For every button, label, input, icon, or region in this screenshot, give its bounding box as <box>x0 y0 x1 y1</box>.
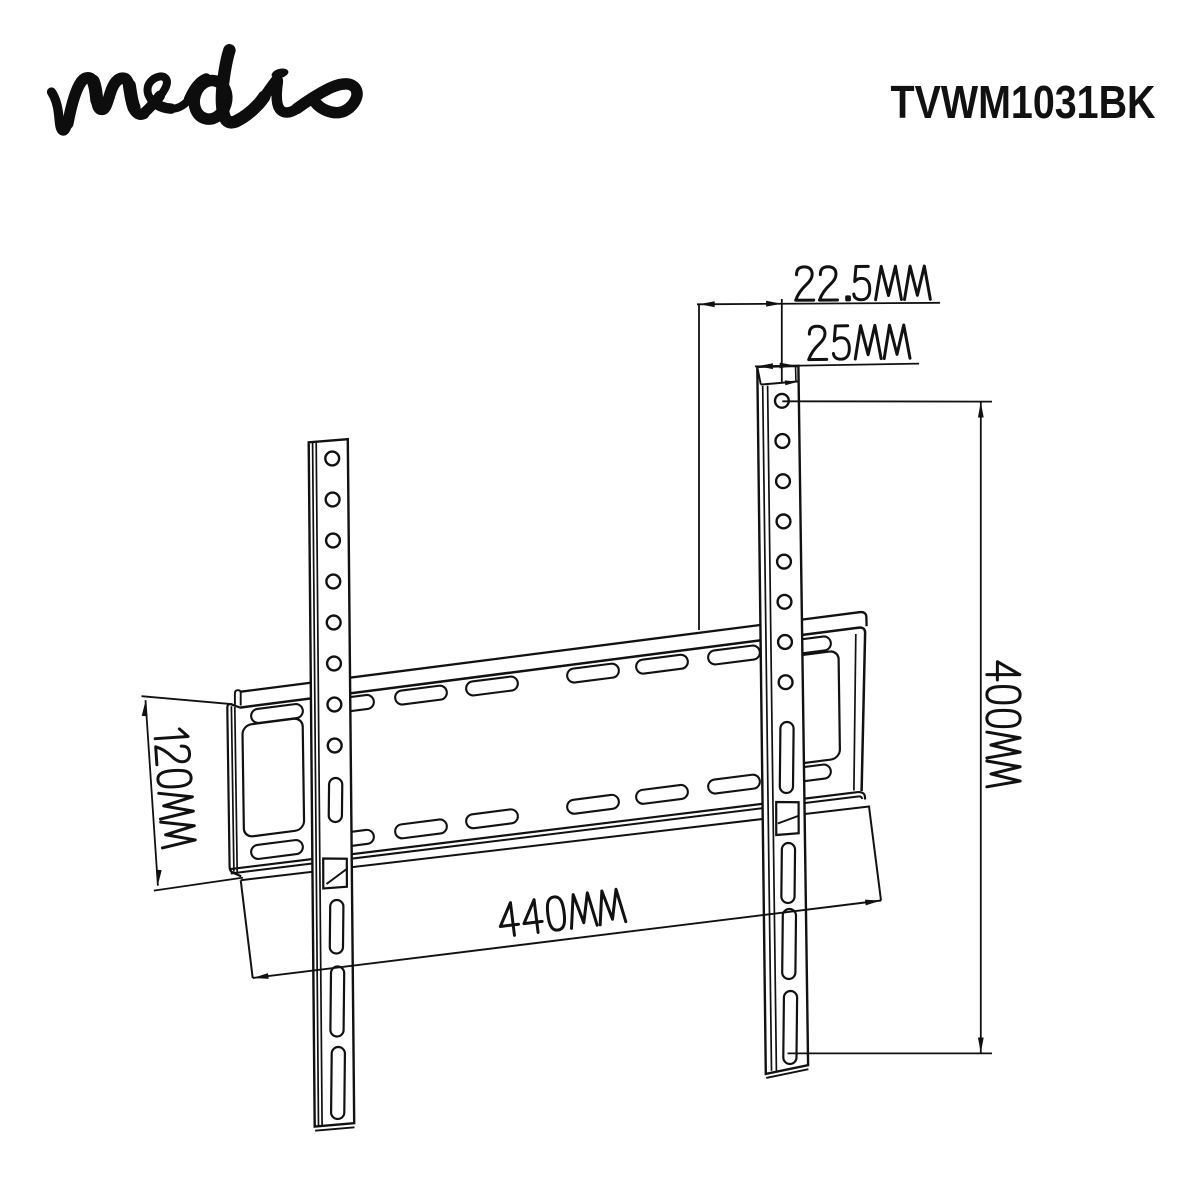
svg-text:TVWM1031BK: TVWM1031BK <box>891 77 1156 129</box>
